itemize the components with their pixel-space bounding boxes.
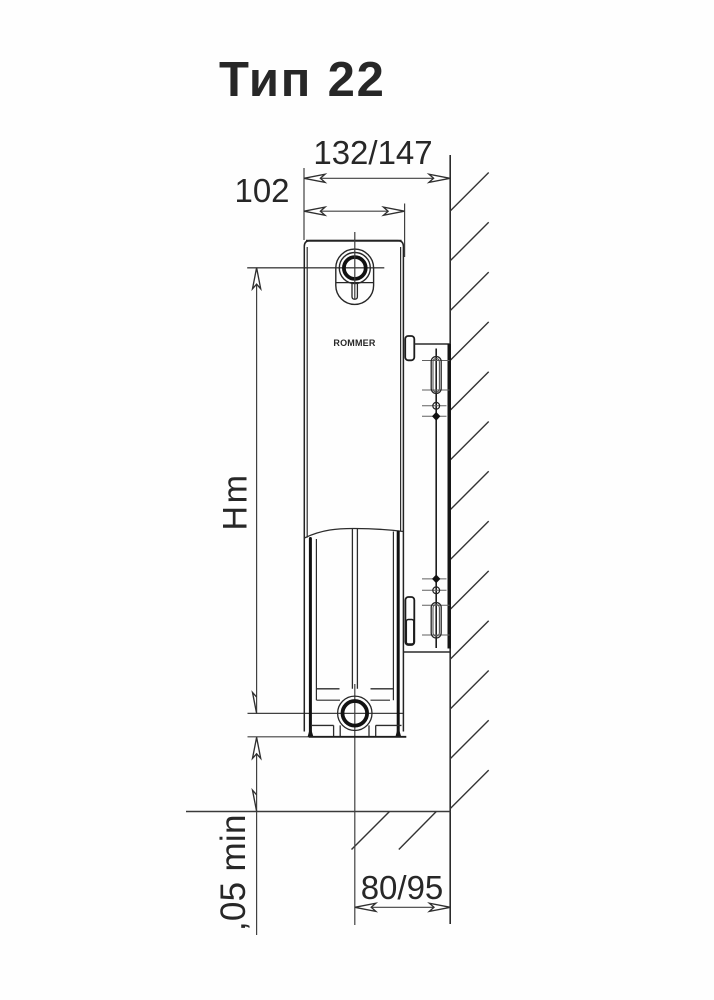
- svg-text:,05 min: ,05 min: [214, 814, 253, 931]
- svg-text:80/95: 80/95: [361, 869, 444, 906]
- svg-text:102: 102: [234, 172, 289, 209]
- svg-text:ROMMER: ROMMER: [333, 338, 375, 348]
- svg-text:Hm: Hm: [217, 473, 255, 531]
- svg-text:132/147: 132/147: [313, 134, 432, 171]
- svg-text:Тип 22: Тип 22: [219, 53, 386, 107]
